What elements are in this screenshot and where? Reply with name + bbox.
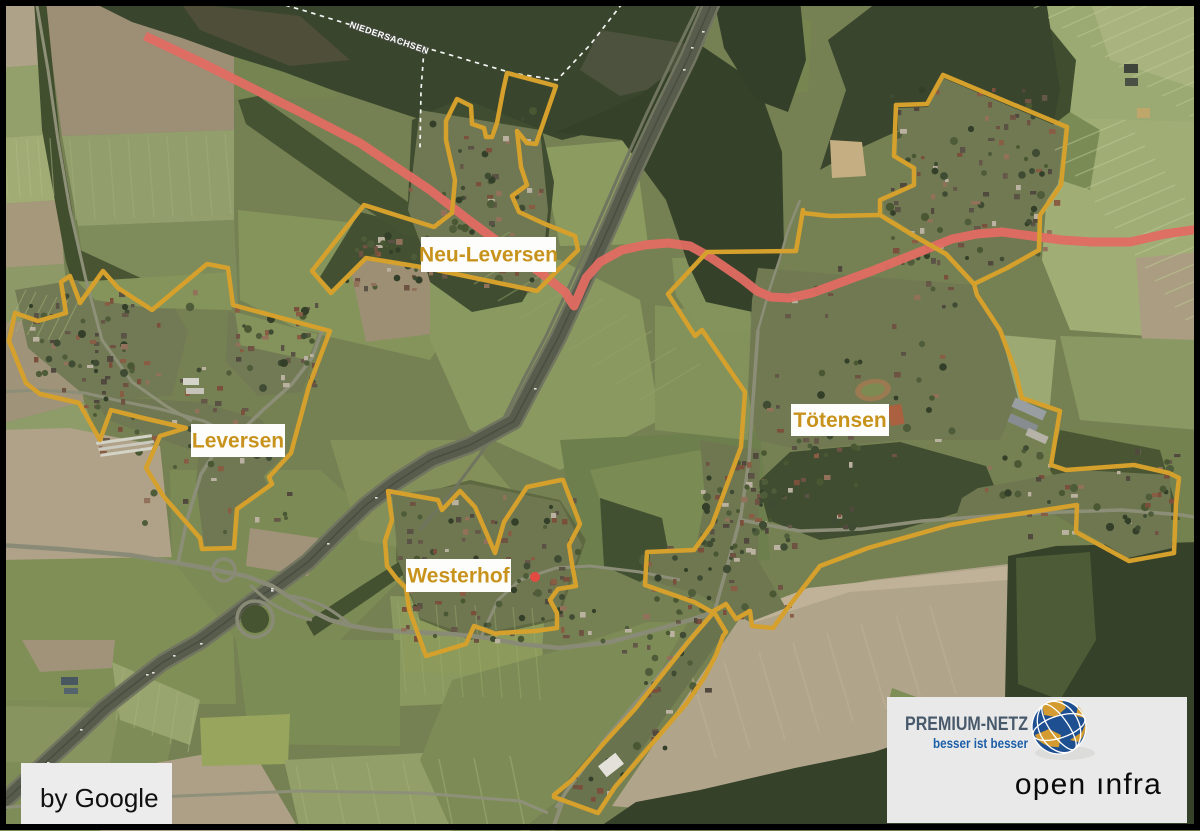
svg-text:PREMIUM-NETZ: PREMIUM-NETZ bbox=[905, 714, 1028, 735]
svg-text:by Google: by Google bbox=[40, 783, 159, 813]
svg-text:Westerhof: Westerhof bbox=[407, 565, 510, 588]
svg-text:Leversen: Leversen bbox=[192, 430, 284, 453]
svg-text:open ınfra: open ınfra bbox=[1015, 768, 1162, 801]
svg-text:besser ist besser: besser ist besser bbox=[933, 735, 1028, 751]
svg-text:Neu-Leversen: Neu-Leversen bbox=[419, 244, 558, 267]
svg-text:Tötensen: Tötensen bbox=[793, 409, 886, 432]
